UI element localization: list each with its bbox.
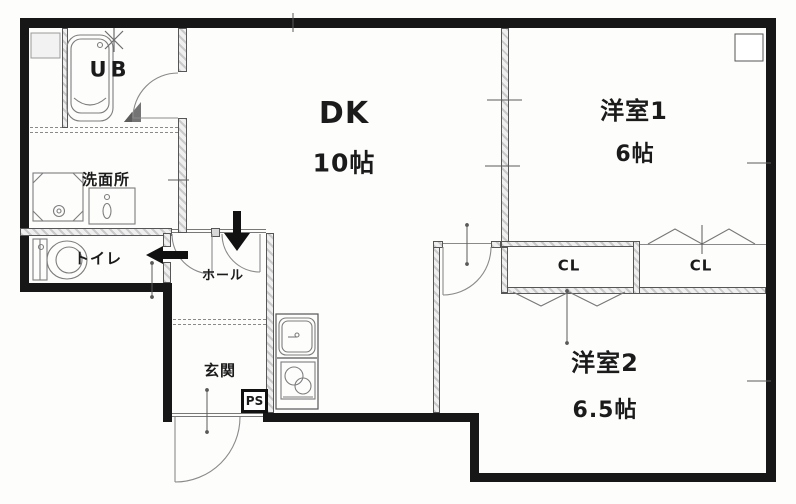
room-label-dk: DK: [319, 99, 369, 129]
door-entrance: [175, 417, 240, 482]
meter-box: [31, 33, 60, 58]
threshold-entrance: [172, 413, 266, 417]
grid-ticks: [151, 13, 771, 434]
room-size-western1: 6帖: [615, 144, 654, 166]
door-western2: [443, 247, 491, 295]
line-ub-washroom: [20, 127, 178, 133]
line-genkan-step: [163, 319, 266, 325]
room-size-western2: 6.5帖: [573, 400, 638, 422]
wall-w2-door-right: [491, 241, 501, 248]
pillar: [735, 34, 763, 61]
floor-plan: PS: [0, 0, 796, 504]
line-cl-top-right: [640, 244, 766, 245]
room-label-hall: ホール: [202, 270, 244, 283]
room-size-dk: 10帖: [313, 151, 376, 176]
closet2-label: CL: [690, 259, 713, 274]
stub-hall-doors: [211, 228, 220, 237]
washing-machine-pan: [33, 173, 83, 221]
closet2-folding-door: [648, 229, 755, 244]
pipe-space-label: PS: [246, 394, 263, 408]
kitchen-unit: [276, 314, 318, 409]
pipe-space-box: PS: [241, 389, 268, 413]
room-label-toilet: トイレ: [74, 252, 122, 267]
stove: [281, 362, 315, 399]
wall-ub-left: [62, 28, 68, 128]
wall-top: [20, 18, 776, 28]
vanity-sink: [89, 188, 135, 224]
wall-bottom-mid: [263, 413, 479, 422]
wall-left: [20, 18, 29, 292]
room-label-washroom: 洗面所: [82, 173, 130, 188]
wall-toilet-right-lower: [163, 262, 171, 283]
room-label-entrance: 玄関: [204, 364, 236, 379]
wall-dk-w1: [501, 28, 509, 247]
door-dk-hall: [222, 234, 260, 272]
kitchen-sink: [279, 318, 315, 355]
wall-cl-left-edge: [501, 247, 508, 293]
bath-door-corner: [124, 102, 141, 122]
wall-cl-divider: [633, 241, 640, 294]
door-bath: [133, 73, 178, 118]
wall-toilet-right-upper: [163, 233, 171, 247]
wall-left-lower: [163, 283, 172, 422]
wall-dk-leftcol-lower: [178, 118, 187, 233]
closet1-label: CL: [558, 259, 581, 274]
room-label-western2: 洋室2: [571, 351, 639, 375]
wall-bottom-right: [470, 473, 776, 482]
wall-step: [470, 413, 479, 482]
wall-hall-right: [266, 233, 274, 413]
wall-cl-top-left: [501, 241, 640, 247]
wall-w2-left: [433, 247, 440, 413]
room-label-western1: 洋室1: [600, 99, 668, 123]
wall-washroom-toilet: [20, 228, 172, 236]
lintel-w2-door: [443, 243, 491, 244]
bath-faucet-icon: [105, 28, 123, 52]
wall-toilet-bottom: [20, 283, 172, 292]
closet1-folding-door: [513, 292, 625, 306]
room-label-bath: UB: [89, 60, 130, 81]
wall-dk-leftcol-upper: [178, 28, 187, 72]
wall-right: [766, 18, 776, 482]
